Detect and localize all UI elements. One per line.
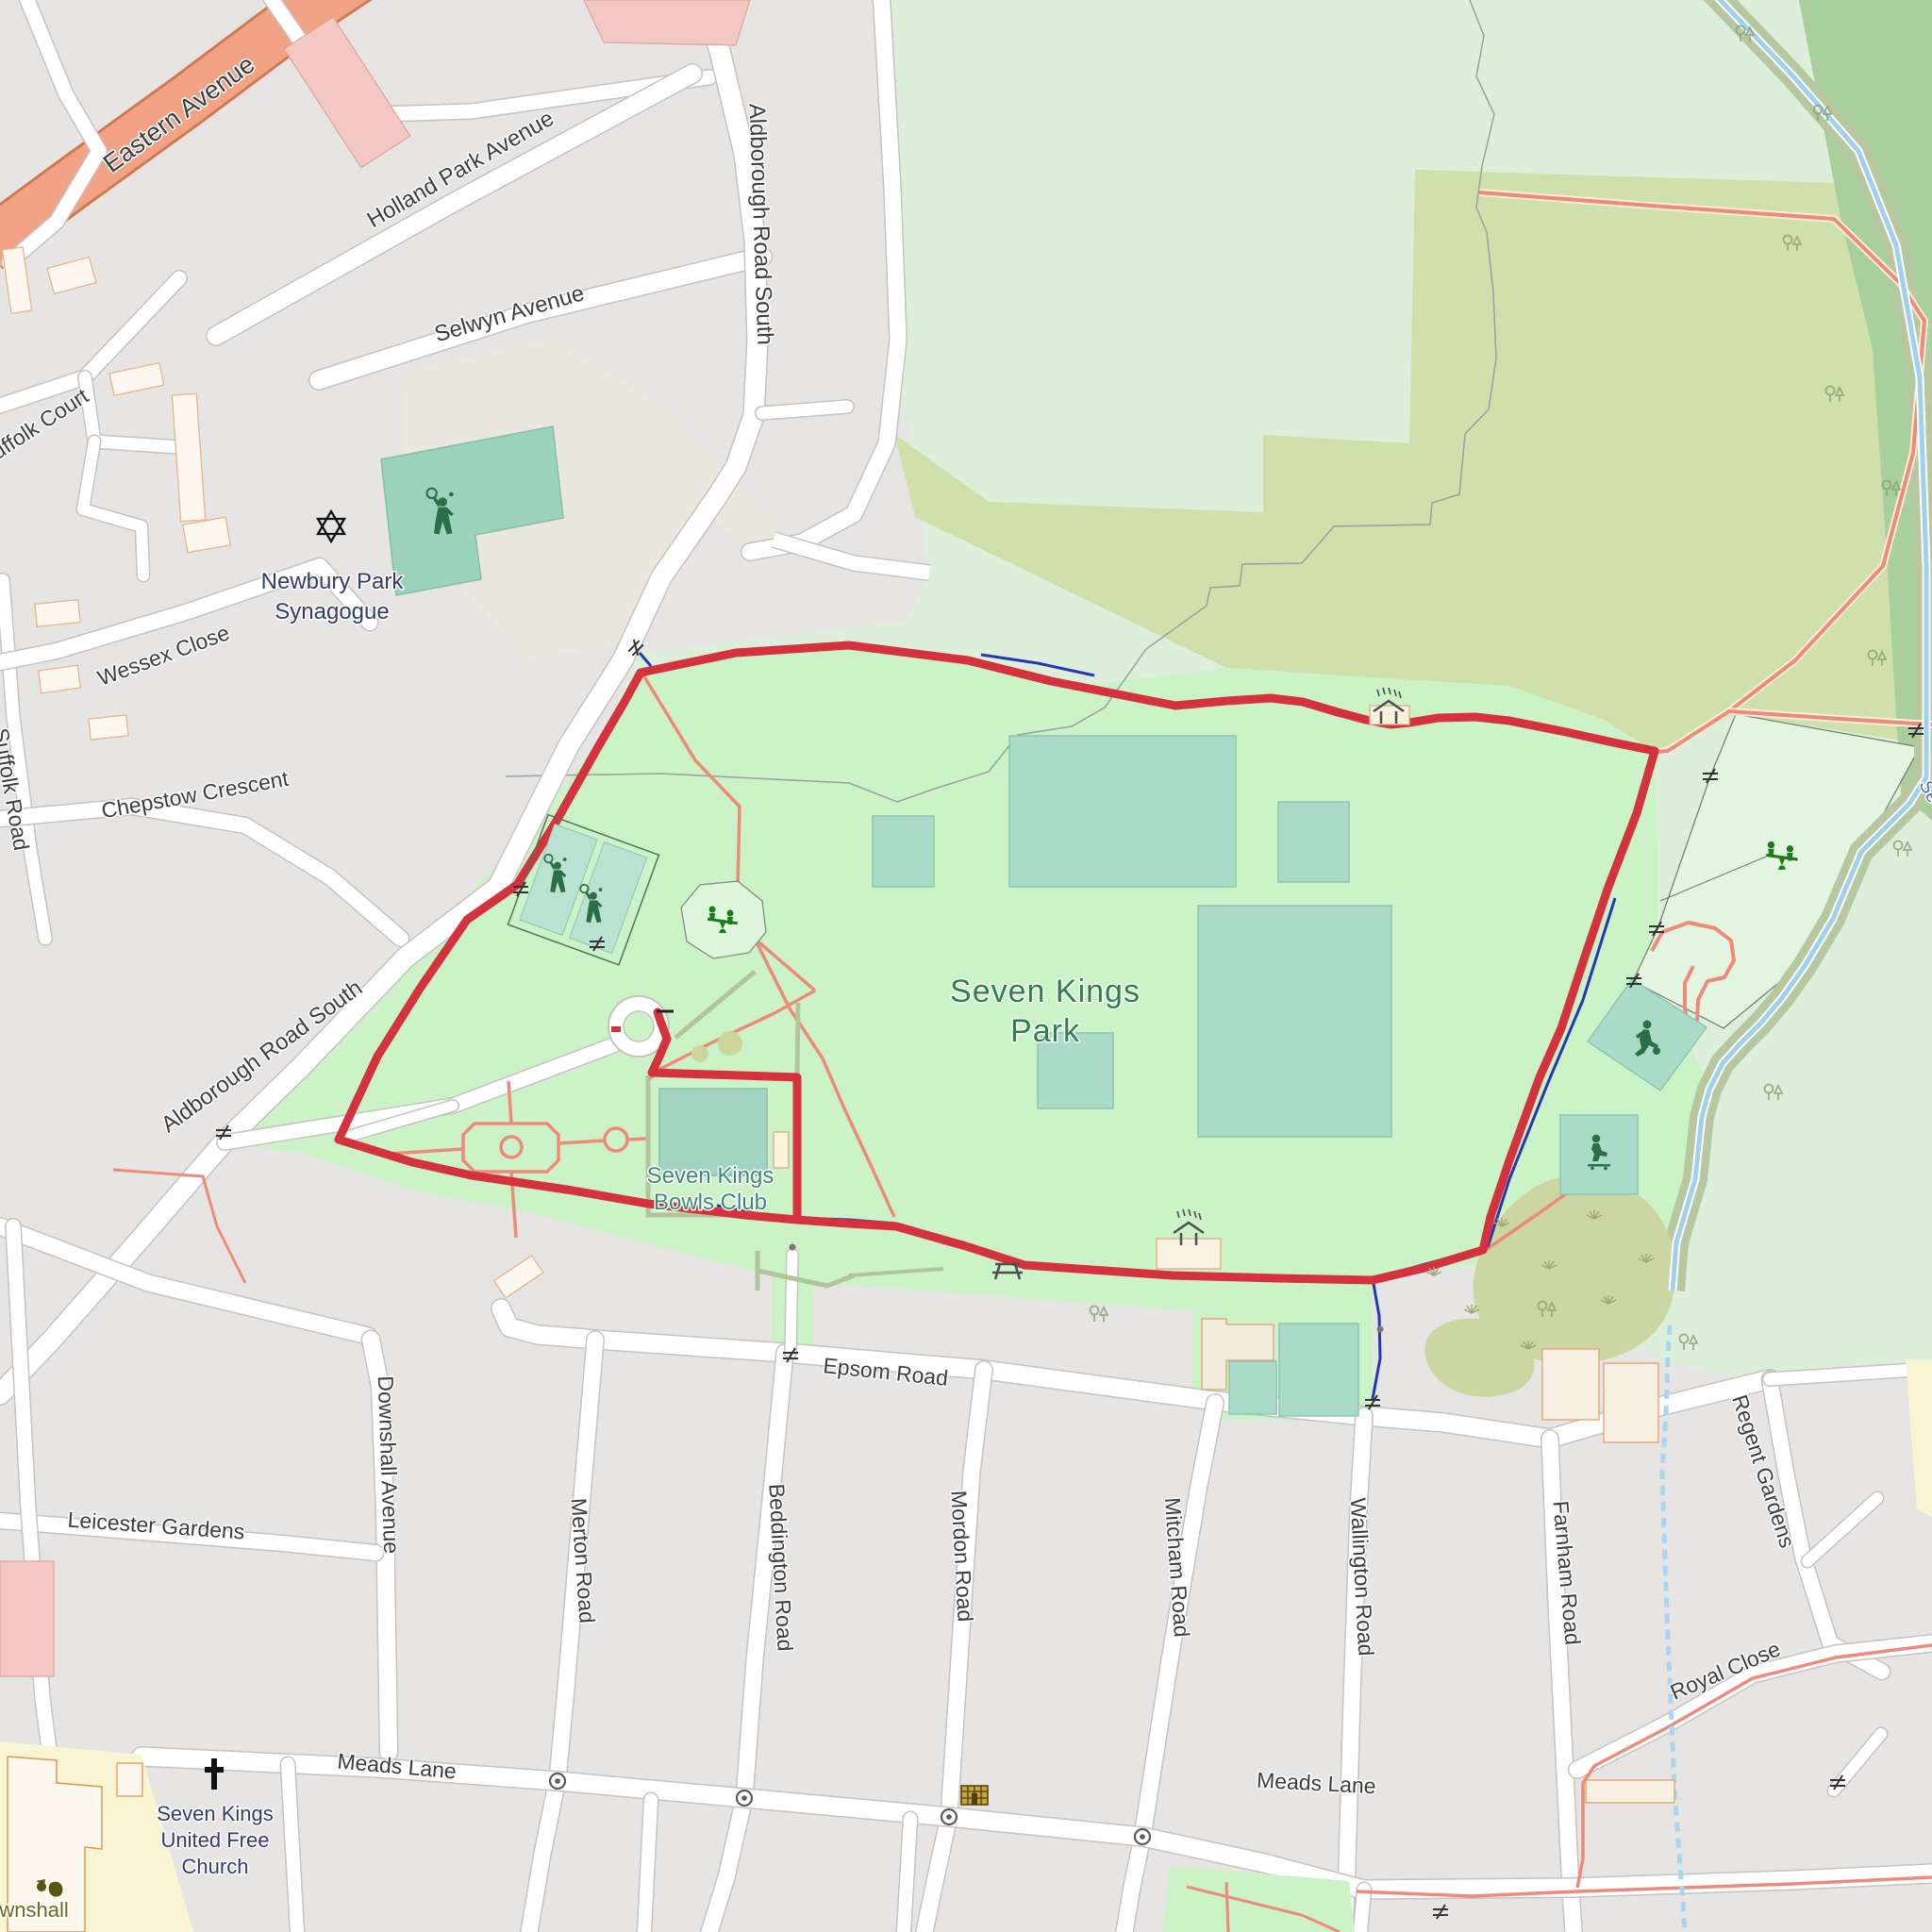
svg-text:Park: Park [1010,1013,1080,1049]
svg-text:Church: Church [182,1855,249,1878]
svg-text:Bowls Club: Bowls Club [654,1190,767,1215]
svg-text:United Free: United Free [161,1828,270,1852]
svg-text:Newbury Park: Newbury Park [261,569,405,594]
svg-text:Synagogue: Synagogue [275,599,389,625]
svg-text:Seven Kings: Seven Kings [157,1802,274,1825]
svg-text:Seven Kings: Seven Kings [950,974,1141,1009]
svg-text:Seven Kings: Seven Kings [647,1163,774,1189]
svg-text:Downshall: Downshall [0,1898,69,1922]
